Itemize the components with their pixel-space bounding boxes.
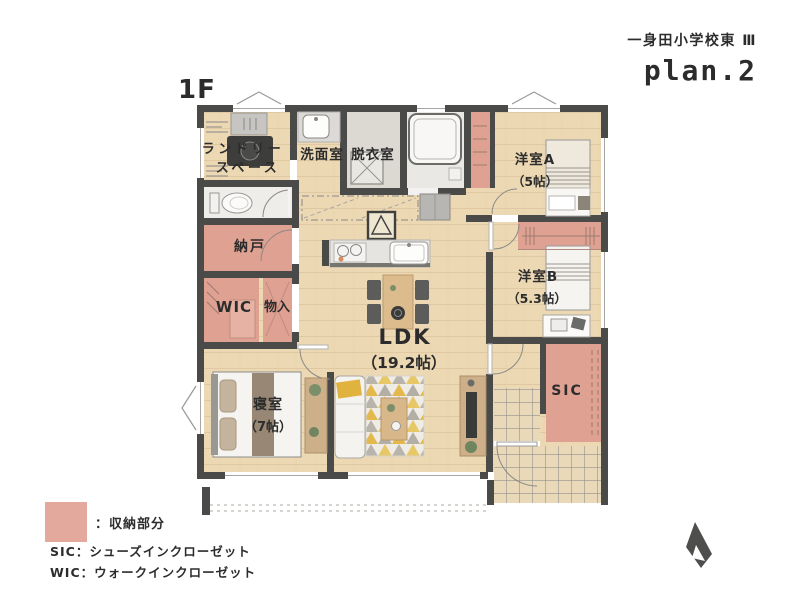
wall-ldk-bedroom-b bbox=[486, 252, 493, 344]
sofa-throw-blanket bbox=[336, 379, 362, 398]
wall-laundry-bottom bbox=[204, 180, 297, 187]
wall-bedroom-top bbox=[204, 342, 297, 349]
bedroom-plant bbox=[309, 427, 319, 437]
wic-door-gap bbox=[292, 284, 299, 332]
sic-definition: SIC：シューズインクローゼット bbox=[50, 544, 251, 559]
window-bottom-bedroom bbox=[225, 472, 318, 479]
dining-table bbox=[383, 275, 413, 329]
bed-a-pillow bbox=[549, 196, 575, 210]
bedroom-a-closet bbox=[470, 112, 490, 188]
living-plant bbox=[465, 441, 477, 453]
burner-3 bbox=[339, 257, 344, 262]
wic-definition: WIC：ウォークインクローゼット bbox=[50, 565, 256, 580]
coffee-table-dish bbox=[392, 422, 401, 431]
wall-nando-bottom bbox=[204, 271, 292, 278]
entrance-inner-tile bbox=[494, 388, 540, 441]
washroom-label: 洗面室 bbox=[300, 146, 344, 163]
bedroom-a-size: （5帖） bbox=[512, 174, 558, 189]
pot bbox=[391, 306, 405, 320]
dressing-label: 脱衣室 bbox=[351, 146, 395, 163]
bed-a-cushion bbox=[578, 196, 590, 210]
kitchen bbox=[330, 240, 430, 267]
wood-deck bbox=[210, 505, 486, 511]
wall-bedroom-ldk bbox=[327, 372, 334, 472]
bedroom-window-marker bbox=[182, 386, 196, 430]
bedroom-a-label: 洋室A bbox=[515, 151, 555, 168]
wall-bath-closet bbox=[464, 112, 471, 188]
project-name: 一身田小学校東 Ⅲ bbox=[627, 32, 757, 49]
bedroom-b-label: 洋室B bbox=[518, 268, 558, 285]
dining-chair bbox=[415, 280, 429, 300]
laundry-label-line2: スペース bbox=[216, 161, 280, 176]
dining-chair bbox=[367, 304, 381, 324]
coffee-table-plant bbox=[387, 404, 395, 412]
table-plant bbox=[390, 285, 396, 291]
legend: ：収納部分 SIC：シューズインクローゼット WIC：ウォークインクローゼット bbox=[45, 502, 256, 580]
bed-headboard bbox=[211, 374, 218, 455]
window-top-laundry bbox=[233, 105, 285, 112]
wall-ldk-entrance bbox=[486, 374, 493, 472]
floor-label: 1F bbox=[178, 75, 216, 105]
deck-left-post bbox=[202, 487, 210, 515]
laundry-opening bbox=[290, 160, 297, 180]
floor-plan-canvas: ランドリー スペース 洗面室 脱衣室 洋室A （5帖） 洋室B （5.3帖） 納… bbox=[0, 0, 800, 600]
kitchen-faucet bbox=[407, 243, 411, 247]
hall-door-leaf bbox=[488, 344, 492, 374]
washroom-sink bbox=[298, 112, 340, 142]
roof-vent-triangle-left bbox=[237, 92, 281, 104]
bedroom-b-door-leaf bbox=[489, 222, 493, 250]
storage-swatch-label: ：収納部分 bbox=[95, 516, 165, 532]
laundry-cabinet bbox=[231, 113, 267, 135]
toilet-fixture bbox=[210, 193, 252, 213]
header: 1F 一身田小学校東 Ⅲ plan.2 bbox=[178, 32, 757, 105]
pillow bbox=[220, 380, 236, 412]
storage-color-swatch bbox=[45, 502, 87, 542]
window-right-bedroom-a bbox=[601, 138, 608, 212]
wall-hall-sic bbox=[540, 344, 546, 414]
pillow bbox=[220, 418, 236, 450]
bathtub bbox=[409, 114, 461, 164]
monoire-label: 物入 bbox=[264, 299, 290, 315]
laundry-label-line1: ランドリー bbox=[202, 142, 285, 157]
window-right-bedroom-b bbox=[601, 252, 608, 328]
roof-vent-triangle-right bbox=[512, 92, 556, 104]
wall-laundry-washroom bbox=[290, 112, 297, 162]
ldk-size: （19.2帖） bbox=[362, 353, 447, 372]
wall-porch-stub bbox=[487, 480, 494, 505]
laptop bbox=[551, 319, 567, 331]
window-top-bedroom-a bbox=[508, 105, 560, 112]
master-label: 寝室 bbox=[253, 396, 283, 413]
wic-label: WIC bbox=[216, 298, 252, 316]
toilet-tank bbox=[210, 193, 219, 213]
window-top-bath bbox=[417, 105, 445, 112]
master-bedroom-furniture bbox=[211, 372, 327, 457]
living-room bbox=[335, 376, 486, 458]
wall-toilet-bottom bbox=[204, 218, 297, 225]
dining-chair bbox=[367, 280, 381, 300]
sic-label: SIC bbox=[551, 383, 583, 399]
nando-label: 納戸 bbox=[234, 238, 266, 255]
bed-runner bbox=[252, 373, 274, 456]
floor-plan-page: ランドリー スペース 洗面室 脱衣室 洋室A （5帖） 洋室B （5.3帖） 納… bbox=[0, 0, 800, 600]
coffee-table bbox=[381, 398, 407, 440]
window-bottom-living bbox=[348, 472, 480, 479]
north-arrow-icon bbox=[686, 522, 712, 568]
bedroom-plant bbox=[309, 384, 321, 396]
wall-bedroom-b-bottom bbox=[493, 337, 608, 344]
wall-kitchen-stub bbox=[322, 240, 329, 266]
ldk-label: LDK bbox=[378, 325, 431, 349]
bedroom-a-door-gap bbox=[492, 215, 518, 222]
sink-faucet bbox=[314, 117, 318, 121]
dining-chair bbox=[415, 304, 429, 324]
window-left-bedroom bbox=[197, 382, 204, 434]
entrance-door-leaf bbox=[497, 442, 537, 446]
nando-door-gap bbox=[292, 228, 299, 264]
wall-dressing-bath bbox=[400, 112, 407, 188]
tv-board-item bbox=[468, 380, 475, 387]
master-size: （7帖） bbox=[244, 419, 292, 435]
tv bbox=[466, 392, 477, 438]
entrance-porch-tile bbox=[494, 446, 601, 503]
bedroom-b-size: （5.3帖） bbox=[507, 291, 567, 306]
bath-stool bbox=[449, 168, 461, 180]
wall-closet-bedroom-a bbox=[490, 112, 495, 188]
plan-name: plan.2 bbox=[644, 54, 757, 87]
master-bedroom-door-leaf bbox=[298, 345, 328, 349]
